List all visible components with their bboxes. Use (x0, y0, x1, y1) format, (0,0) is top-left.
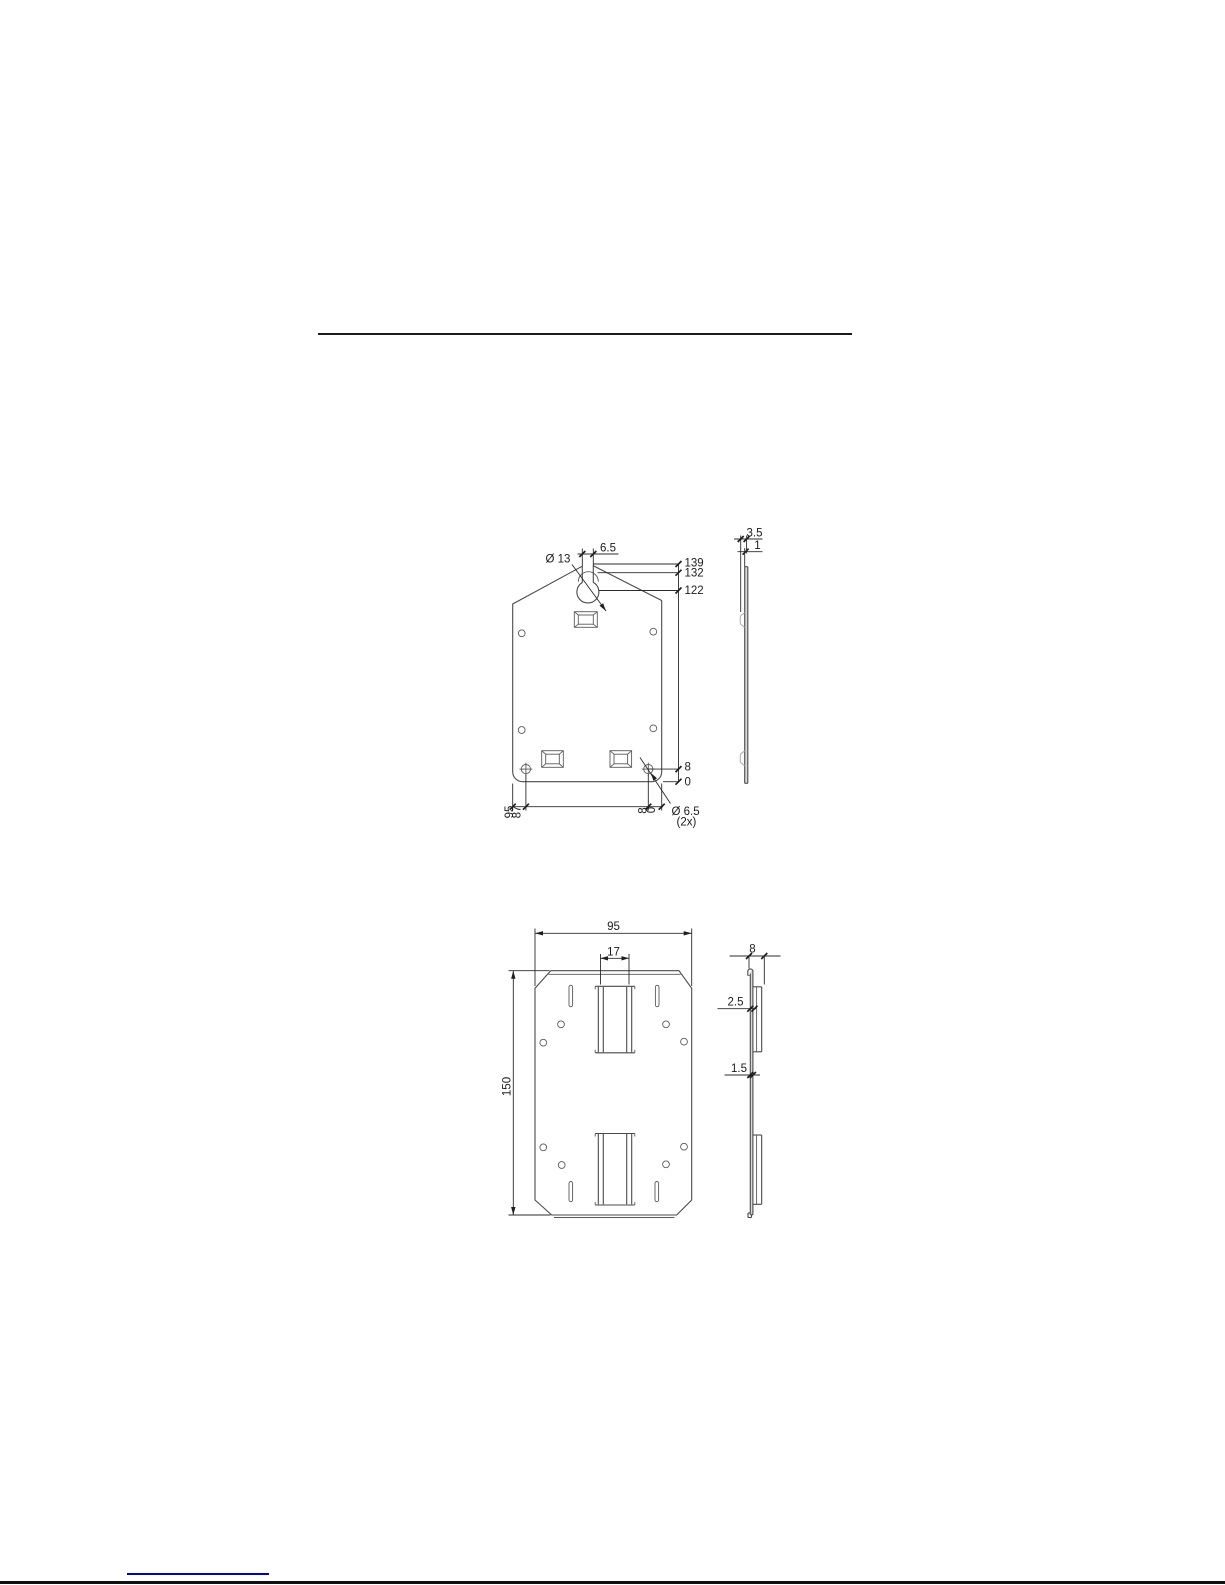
drawing1-side-view: 3.5 1 (734, 528, 763, 784)
drawing2-front-view (535, 971, 692, 1218)
dim-keyhole-diameter: Ø 13 (546, 554, 571, 566)
dim-width-87: 87 (511, 806, 523, 819)
drawing2-front-dimensions: 95 17 150 (502, 921, 692, 1215)
dim-bottom-hole-count: (2x) (677, 817, 697, 829)
dim-material-thickness: 1 (754, 540, 760, 552)
hole (518, 630, 525, 637)
hole (663, 1021, 670, 1028)
upper-emboss (574, 612, 597, 628)
plate-outline (513, 566, 662, 782)
drawing1-front-dimensions: 6.5 Ø 13 139 132 122 8 0 (504, 543, 704, 829)
dim-plate-width: 95 (607, 921, 620, 933)
dim-rail-width: 17 (607, 946, 620, 958)
footer-link[interactable] (127, 1573, 269, 1575)
plate-outline (535, 971, 692, 1215)
dim-level-132: 132 (685, 568, 704, 580)
slot (655, 985, 659, 1006)
lower-emboss-left (542, 751, 564, 768)
hole (681, 1143, 688, 1150)
emboss-bump-lower (740, 751, 745, 766)
dim-level-8: 8 (685, 762, 691, 774)
hole (558, 1162, 565, 1169)
technical-drawings: 6.5 Ø 13 139 132 122 8 0 (0, 0, 1225, 1585)
dim-rail-depth: 8 (749, 944, 755, 956)
page-bottom-border (0, 1581, 1225, 1584)
lower-emboss-right (610, 751, 632, 768)
hole (540, 1144, 547, 1151)
hole (650, 725, 657, 732)
rail-lower-profile (753, 1135, 762, 1204)
rail-lower (595, 1134, 635, 1206)
drawing2-side-view: 8 2.5 1.5 (718, 944, 781, 1218)
hole (518, 727, 525, 734)
bottom-hole-left (519, 763, 532, 776)
dim-slot-width: 6.5 (600, 543, 616, 555)
dim-width-0: 0 (646, 807, 658, 813)
rail-upper-profile (753, 987, 762, 1052)
rail-upper (595, 986, 635, 1053)
dim-material-thickness: 1.5 (731, 1063, 747, 1075)
hole (650, 628, 657, 635)
dim-rail-offset: 2.5 (728, 997, 744, 1009)
manual-page: 6.5 Ø 13 139 132 122 8 0 (0, 0, 1225, 1585)
hole (558, 1021, 565, 1028)
drawing1-front-view (513, 566, 662, 782)
slot (655, 1182, 659, 1202)
slot (569, 985, 573, 1006)
hole (681, 1038, 688, 1045)
dim-plate-height: 150 (502, 1077, 514, 1096)
dim-level-122: 122 (685, 585, 704, 597)
emboss-bump-upper (740, 613, 745, 628)
slot (569, 1182, 573, 1202)
dim-level-0: 0 (685, 777, 691, 789)
hole (663, 1161, 670, 1168)
dim-emboss-depth: 3.5 (747, 528, 763, 540)
hole (540, 1039, 547, 1046)
